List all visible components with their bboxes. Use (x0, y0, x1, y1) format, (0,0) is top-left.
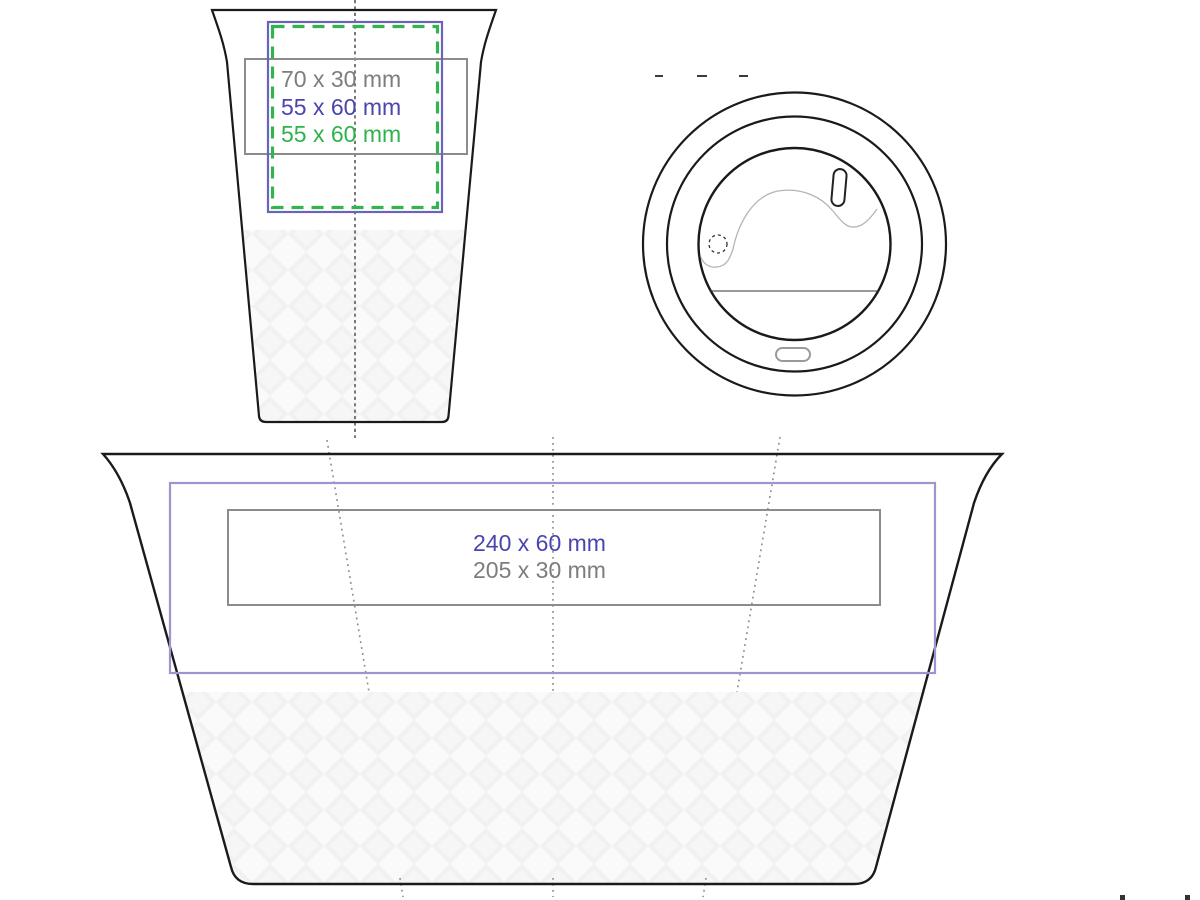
flat-surface-pattern (181, 692, 925, 883)
front-label-gray: 70 x 30 mm (281, 66, 401, 92)
crop-mark-right (1185, 895, 1190, 900)
front-view: 70 x 30 mm 55 x 60 mm 55 x 60 mm (212, 0, 496, 438)
flat-label-blue: 240 x 60 mm (473, 530, 606, 556)
diagram-canvas: 70 x 30 mm 55 x 60 mm 55 x 60 mm (0, 0, 1200, 900)
front-label-green: 55 x 60 mm (281, 121, 401, 147)
flat-label-gray: 205 x 30 mm (473, 557, 606, 583)
crop-mark-left (1120, 895, 1125, 900)
lid-drink-opening (776, 348, 810, 361)
lid-top-view (643, 76, 946, 396)
flat-view: 240 x 60 mm 205 x 30 mm (103, 437, 1002, 897)
front-label-blue: 55 x 60 mm (281, 94, 401, 120)
print-template-diagram: 70 x 30 mm 55 x 60 mm 55 x 60 mm (0, 0, 1200, 900)
lid-vent-slot (831, 169, 847, 207)
